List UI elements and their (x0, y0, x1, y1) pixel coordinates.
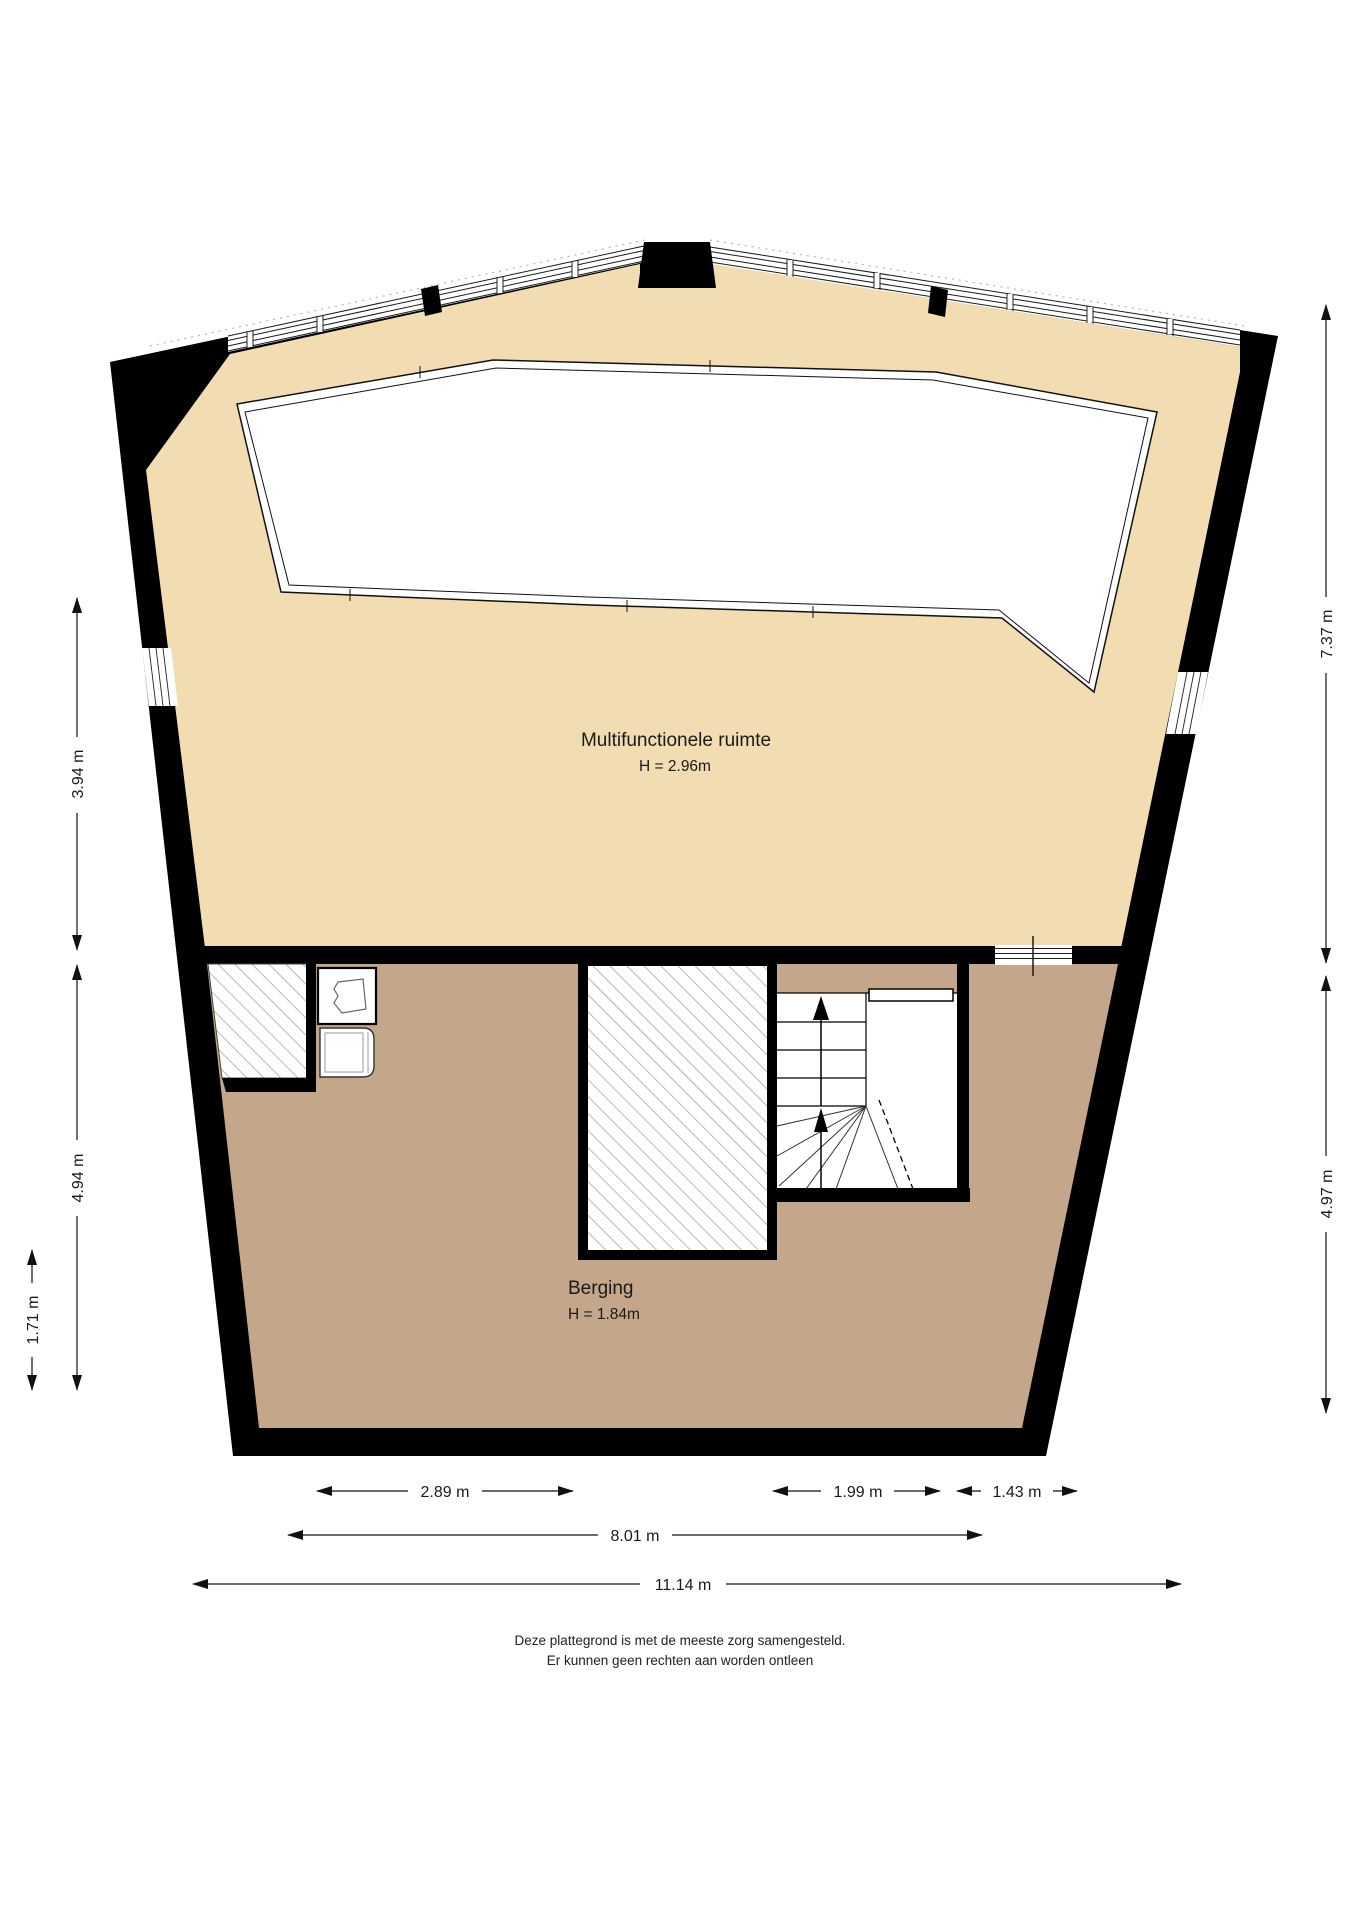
svg-text:1.71 m: 1.71 m (25, 1296, 42, 1345)
sink-icon (318, 968, 376, 1024)
room-height-storage: H = 1.84m (568, 1306, 640, 1323)
svg-text:1.99 m: 1.99 m (834, 1484, 883, 1501)
floorplan-page: Multifunctionele ruimte H = 2.96m Bergin… (0, 0, 1358, 1920)
svg-text:4.97 m: 4.97 m (1319, 1170, 1336, 1219)
svg-text:2.89 m: 2.89 m (421, 1484, 470, 1501)
svg-text:8.01 m: 8.01 m (611, 1528, 660, 1545)
dim-bottom-left: 2.89 m (317, 1480, 573, 1501)
svg-text:1.43 m: 1.43 m (993, 1484, 1042, 1501)
room-label-multifunctional: Multifunctionele ruimte (581, 730, 771, 751)
disclaimer-line2: Er kunnen geen rechten aan worden ontlee… (547, 1653, 813, 1668)
divider-wall-right (1072, 946, 1122, 964)
dim-right-lower: 4.97 m (1313, 976, 1339, 1413)
dim-left-lower: 4.94 m (64, 965, 90, 1390)
svg-text:3.94 m: 3.94 m (70, 750, 87, 799)
disclaimer: Deze plattegrond is met de meeste zorg s… (515, 1633, 846, 1668)
washer-icon (320, 1028, 374, 1077)
dim-bottom-span: 8.01 m (288, 1524, 982, 1545)
dim-bottom-right: 1.43 m (957, 1480, 1077, 1501)
svg-text:11.14 m: 11.14 m (655, 1577, 712, 1594)
dim-left-upper: 3.94 m (64, 598, 90, 950)
stairwell-right-wall (957, 964, 969, 1202)
disclaimer-line1: Deze plattegrond is met de meeste zorg s… (515, 1633, 846, 1648)
room-height-multifunctional: H = 2.96m (639, 758, 711, 775)
floorplan-svg: Multifunctionele ruimte H = 2.96m Bergin… (0, 0, 1358, 1920)
svg-text:4.94 m: 4.94 m (70, 1154, 87, 1203)
dim-bottom-total: 11.14 m (193, 1573, 1181, 1594)
dim-bottom-mid: 1.99 m (773, 1480, 940, 1501)
room-label-storage: Berging (568, 1278, 634, 1299)
building: Multifunctionele ruimte H = 2.96m Bergin… (110, 240, 1278, 1456)
stairwell (777, 989, 957, 1189)
dim-left-inner: 1.71 m (19, 1250, 45, 1390)
svg-text:7.37 m: 7.37 m (1319, 610, 1336, 659)
shaft-hatch (578, 956, 777, 1260)
wc-hatch (208, 964, 316, 1092)
window-post-right (928, 286, 948, 317)
stairwell-bottom-wall (770, 1188, 970, 1202)
stairs-handrail (869, 989, 953, 1001)
apex-pillar (638, 242, 716, 288)
dim-right-upper: 7.37 m (1313, 305, 1339, 963)
